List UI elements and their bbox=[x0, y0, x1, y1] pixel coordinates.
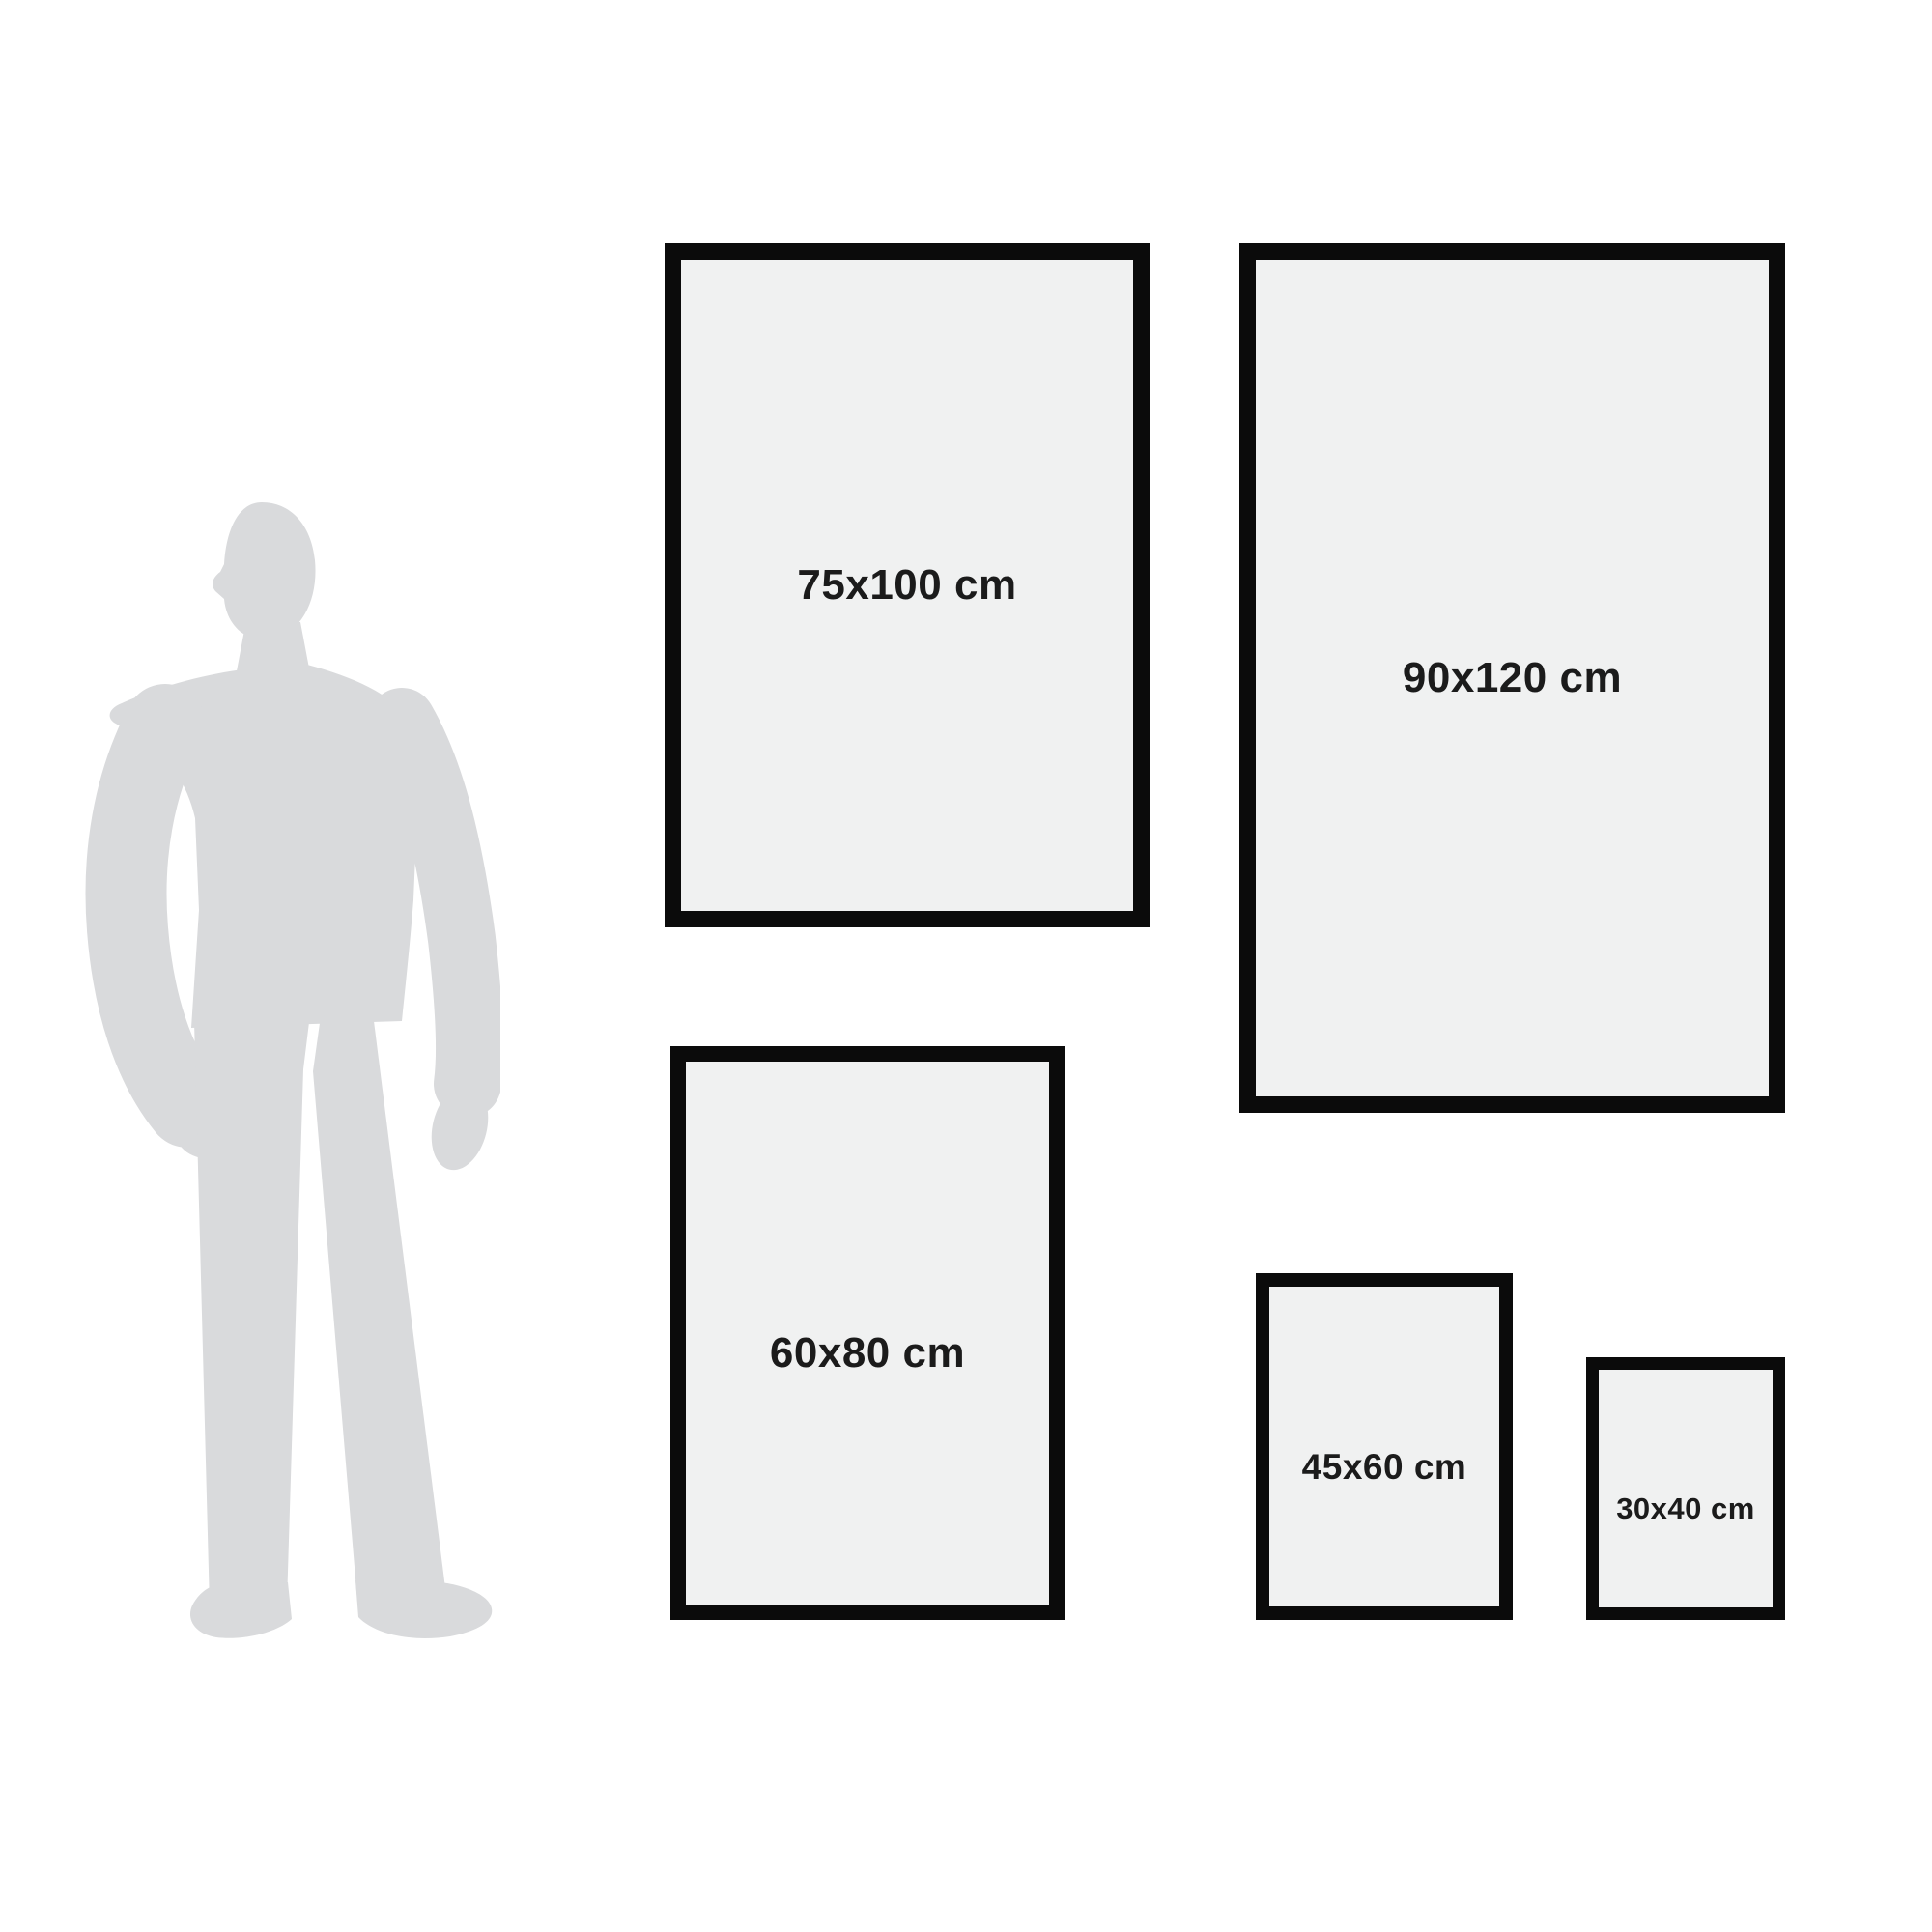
size-label-90x120: 90x120 cm bbox=[1403, 654, 1622, 702]
size-label-45x60: 45x60 cm bbox=[1302, 1447, 1467, 1488]
size-frame-75x100: 75x100 cm bbox=[665, 243, 1150, 927]
size-comparison-diagram: 75x100 cm 90x120 cm 60x80 cm 45x60 cm 30… bbox=[0, 0, 1932, 1932]
size-frame-90x120: 90x120 cm bbox=[1239, 243, 1785, 1113]
size-frame-60x80: 60x80 cm bbox=[670, 1046, 1065, 1620]
size-label-30x40: 30x40 cm bbox=[1616, 1492, 1755, 1526]
man-silhouette bbox=[83, 495, 500, 1654]
man-silhouette-graphic bbox=[83, 495, 500, 1654]
size-frame-30x40: 30x40 cm bbox=[1586, 1357, 1785, 1620]
size-label-75x100: 75x100 cm bbox=[797, 561, 1016, 610]
size-label-60x80: 60x80 cm bbox=[770, 1329, 965, 1378]
size-frame-45x60: 45x60 cm bbox=[1256, 1273, 1513, 1620]
